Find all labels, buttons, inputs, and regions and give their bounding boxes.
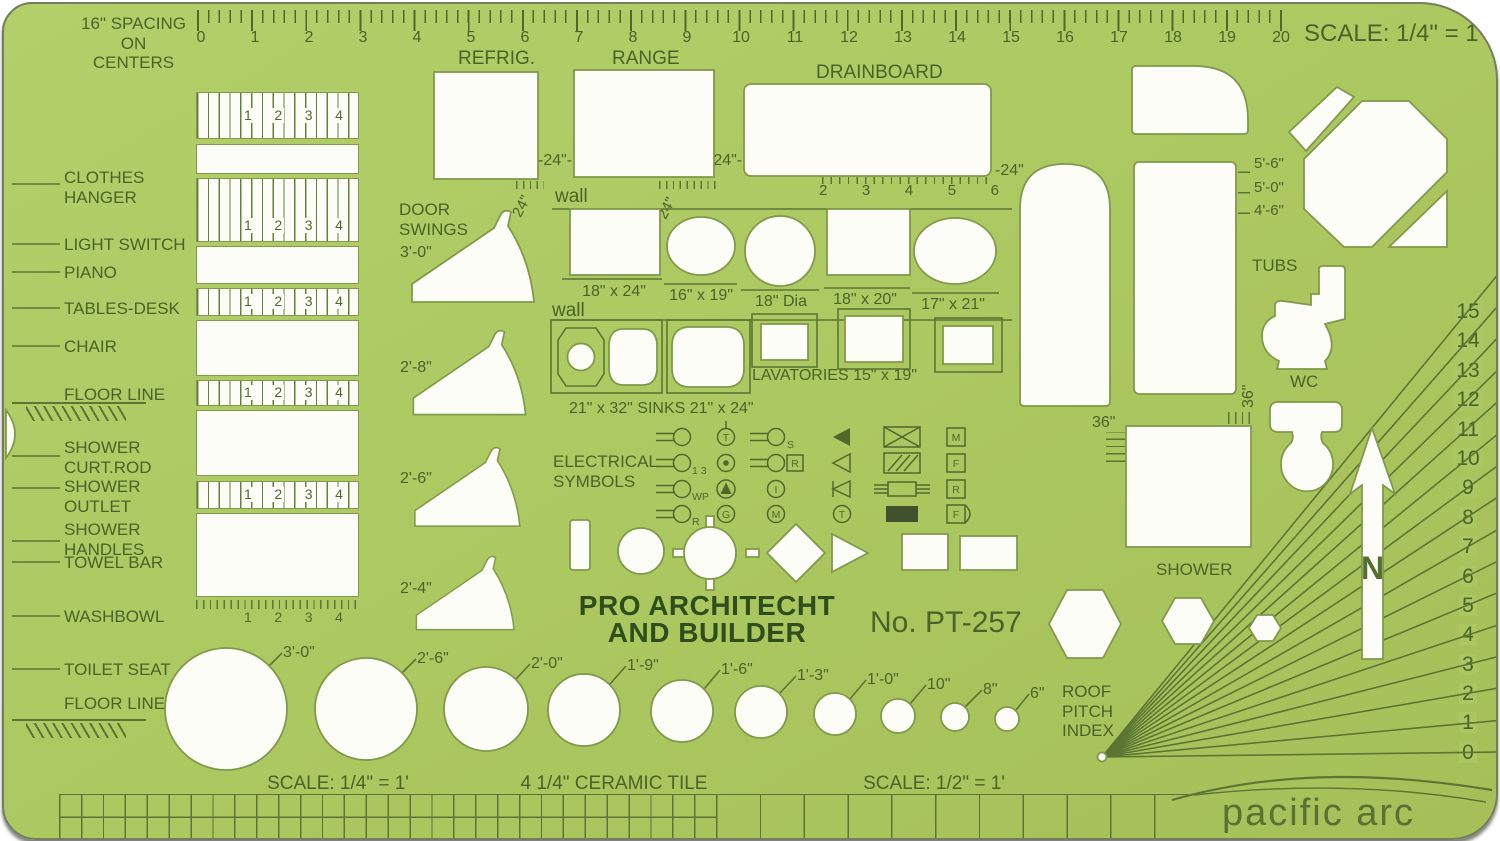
triangle-with-bar [833, 481, 850, 497]
door-swing-3-0 [412, 211, 534, 302]
sink-bowl-large [672, 327, 744, 387]
outlet-wp-label: WP [692, 491, 709, 503]
sink-drain-circle [568, 344, 595, 371]
north-arrow-cutout [1350, 428, 1395, 659]
hexagon-large [1049, 590, 1121, 658]
circle-1-9 [548, 674, 620, 746]
circle-2-6 [315, 658, 417, 760]
tub-rect-cutout [1134, 162, 1236, 394]
circle-8in [941, 703, 969, 731]
tub-arch-cutout [1020, 164, 1110, 406]
north-letter: N [1361, 550, 1384, 586]
lavatory-15x19-a [761, 324, 808, 360]
boxed-f2: F [953, 509, 959, 521]
sink-18dia [745, 216, 815, 286]
range-cutout [574, 70, 714, 177]
circle-t2: T [839, 509, 846, 521]
triangle-cutout [832, 534, 868, 572]
pitch-origin-dot [1098, 753, 1107, 762]
boxed-m: M [952, 432, 961, 444]
toilet-side-cutout [1262, 266, 1345, 369]
stencil-template: 01234567891011121314151617181920 16" SPA… [2, 2, 1498, 840]
product-photo-stencil: 01234567891011121314151617181920 16" SPA… [0, 0, 1500, 841]
circle-m: M [772, 509, 781, 521]
circle-i: I [775, 484, 778, 496]
white-cutouts [6, 66, 1447, 770]
bar-cutout [570, 520, 590, 570]
electrical-symbols-grid: 1 3 WP R T G S R I M T [656, 421, 970, 528]
door-swing-2-8 [413, 331, 525, 415]
hexagon-small [1249, 615, 1281, 641]
outlet-symbols [656, 429, 691, 523]
sink-18x24 [570, 209, 660, 275]
filled-triangle [833, 428, 850, 446]
filled-rect-symbol [886, 506, 918, 522]
circle-3-0 [165, 648, 287, 770]
tub-corner-round [1132, 66, 1248, 134]
switch-s: S [787, 439, 794, 451]
boxed-r-inline: R [791, 458, 799, 470]
boxed-r: R [952, 484, 960, 496]
circle-1-0 [814, 693, 856, 735]
logo-swoosh-2 [1194, 788, 1486, 802]
sink-18x20 [827, 209, 910, 275]
drainboard-cutout [744, 84, 991, 176]
rect-cutout [960, 536, 1017, 570]
edge-notch [6, 410, 15, 458]
circle-1-6 [651, 680, 713, 742]
outlet-13-label: 1 3 [692, 465, 707, 477]
circle-10in [881, 699, 915, 733]
refrig-cutout [434, 72, 538, 179]
circle-cutout [618, 528, 664, 574]
outlet-r-label: R [692, 516, 700, 528]
square-cutout [902, 534, 948, 570]
door-swing-2-6 [415, 448, 520, 527]
door-swing-2-4 [416, 557, 514, 630]
boxed-f: F [953, 458, 959, 470]
shower-cutout [1126, 426, 1251, 547]
diamond-cutout [767, 524, 825, 582]
stencil-shapes-layer: 1 3 WP R T G S R I M T [4, 4, 1498, 840]
circle-g: G [722, 509, 730, 521]
circle-1-3 [735, 686, 787, 738]
lavatory-15x19-b [845, 316, 903, 362]
sink-17x21 [914, 218, 996, 284]
sink-16x19 [667, 217, 735, 275]
circle-2-0 [444, 667, 528, 751]
open-triangle [833, 454, 850, 472]
sink-bowl-small [609, 329, 657, 385]
circle-6in [995, 707, 1019, 731]
column-target-cutout [673, 516, 759, 590]
lavatory-15x19-c [943, 326, 993, 364]
thermostat-t: T [723, 432, 730, 444]
